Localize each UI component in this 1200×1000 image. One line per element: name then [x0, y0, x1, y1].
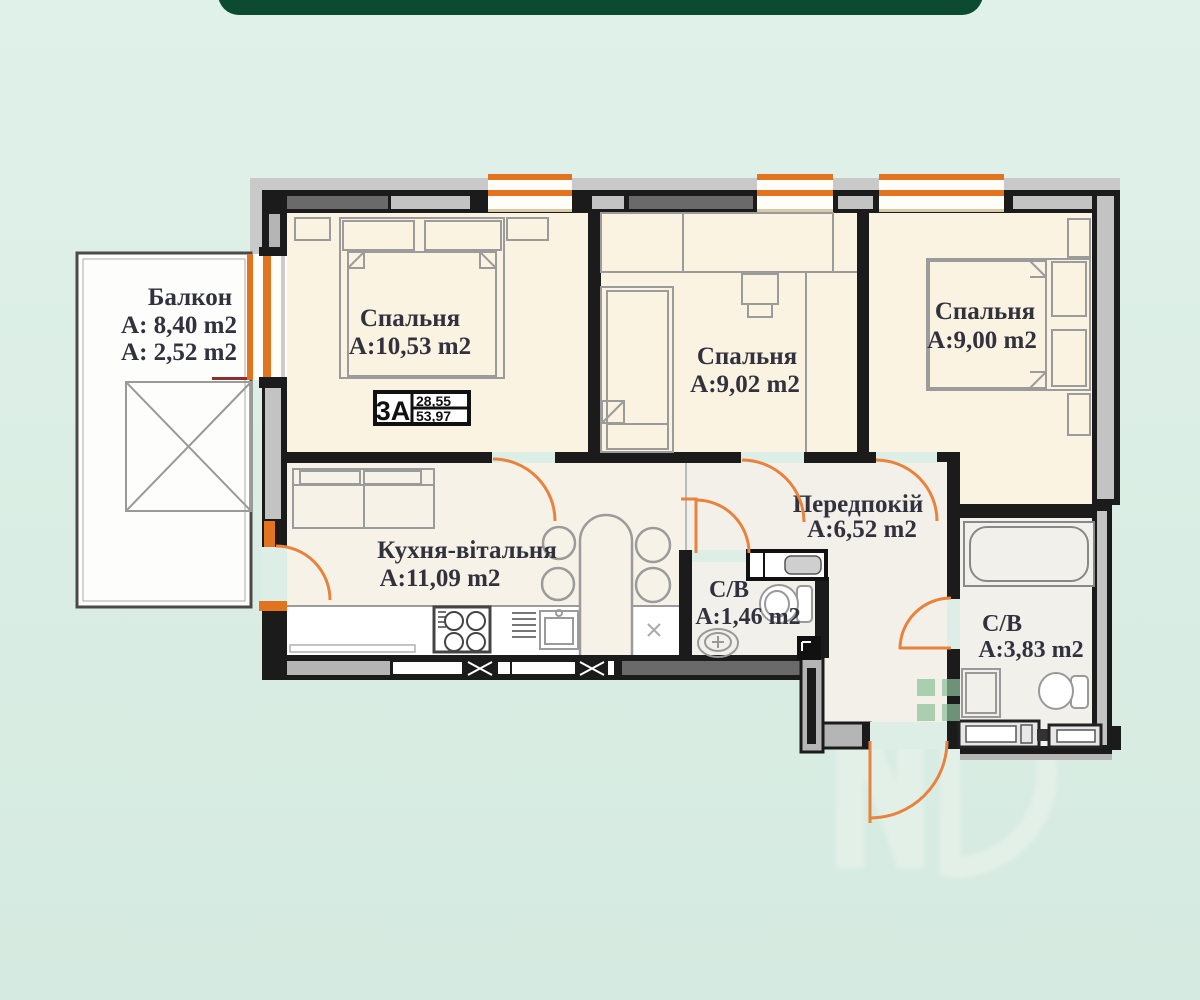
svg-text:А:11,09 m2: А:11,09 m2 — [380, 565, 501, 592]
svg-text:А:9,02 m2: А:9,02 m2 — [690, 371, 800, 398]
svg-text:А: 2,52 m2: А: 2,52 m2 — [121, 339, 237, 366]
svg-text:28,55: 28,55 — [416, 393, 451, 409]
svg-text:А: 8,40 m2: А: 8,40 m2 — [121, 312, 237, 339]
svg-text:Спальня: Спальня — [360, 305, 460, 332]
svg-text:А:1,46 m2: А:1,46 m2 — [695, 604, 800, 630]
svg-text:Спальня: Спальня — [697, 343, 797, 370]
svg-text:С/В: С/В — [709, 577, 749, 603]
svg-text:А:10,53 m2: А:10,53 m2 — [349, 333, 471, 360]
svg-text:53,97: 53,97 — [416, 408, 451, 424]
svg-text:Спальня: Спальня — [935, 298, 1035, 325]
svg-text:3А: 3А — [376, 396, 411, 426]
svg-text:А:3,83 m2: А:3,83 m2 — [978, 637, 1083, 663]
svg-text:Балкон: Балкон — [148, 284, 232, 311]
svg-text:А:6,52 m2: А:6,52 m2 — [807, 516, 917, 543]
svg-text:Кухня-вітальня: Кухня-вітальня — [377, 537, 557, 564]
svg-text:Передпокій: Передпокій — [793, 491, 924, 518]
svg-text:С/В: С/В — [982, 611, 1022, 637]
svg-text:А:9,00 m2: А:9,00 m2 — [927, 327, 1037, 354]
